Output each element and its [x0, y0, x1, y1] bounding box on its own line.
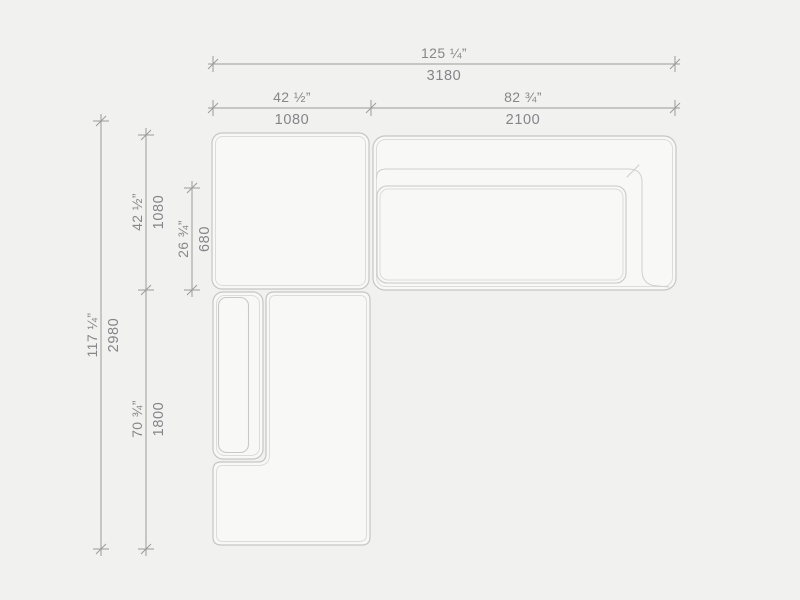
module-corner-seat: [212, 133, 369, 289]
dimension-overall-depth: 117 ¼” 2980: [84, 114, 122, 556]
dimension-overall-width: 125 ¼” 3180: [208, 45, 680, 84]
overall-width-inches-label: 125 ¼”: [421, 45, 467, 61]
right-module-width-mm-label: 2100: [506, 112, 541, 128]
seat-cushion-outline: [377, 186, 626, 283]
overall-width-mm-label: 3180: [427, 68, 462, 84]
dimension-upper-lower-depth: 42 ½” 1080 70 ¾” 1800: [129, 128, 167, 556]
lower-depth-mm-label: 1800: [151, 402, 167, 437]
lower-depth-inches-label: 70 ¾”: [129, 400, 145, 438]
module-armrest-left: [213, 292, 263, 459]
seat-depth-mm-label: 680: [197, 226, 213, 252]
armrest-cushion-outline: [219, 298, 249, 453]
sofa-plan: [212, 133, 676, 545]
dimension-seat-depth: 26 ¾” 680: [175, 181, 213, 297]
overall-depth-mm-label: 2980: [106, 318, 122, 353]
seat-depth-inches-label: 26 ¾”: [175, 220, 191, 258]
technical-drawing-svg: 125 ¼” 3180 42 ½” 1080 82 ¾” 2100 117 ¼”…: [0, 0, 800, 600]
dimension-module-widths: 42 ½” 1080 82 ¾” 2100: [208, 89, 680, 128]
overall-depth-inches-label: 117 ¼”: [84, 313, 100, 358]
right-module-width-inches-label: 82 ¾”: [504, 89, 542, 105]
left-module-width-inches-label: 42 ½”: [273, 89, 311, 105]
corner-seat-outline: [212, 133, 369, 289]
upper-depth-mm-label: 1080: [151, 195, 167, 230]
drawing-canvas: 125 ¼” 3180 42 ½” 1080 82 ¾” 2100 117 ¼”…: [0, 0, 800, 600]
module-sofa-right: [373, 136, 676, 290]
left-module-width-mm-label: 1080: [275, 112, 310, 128]
upper-depth-inches-label: 42 ½”: [129, 193, 145, 231]
